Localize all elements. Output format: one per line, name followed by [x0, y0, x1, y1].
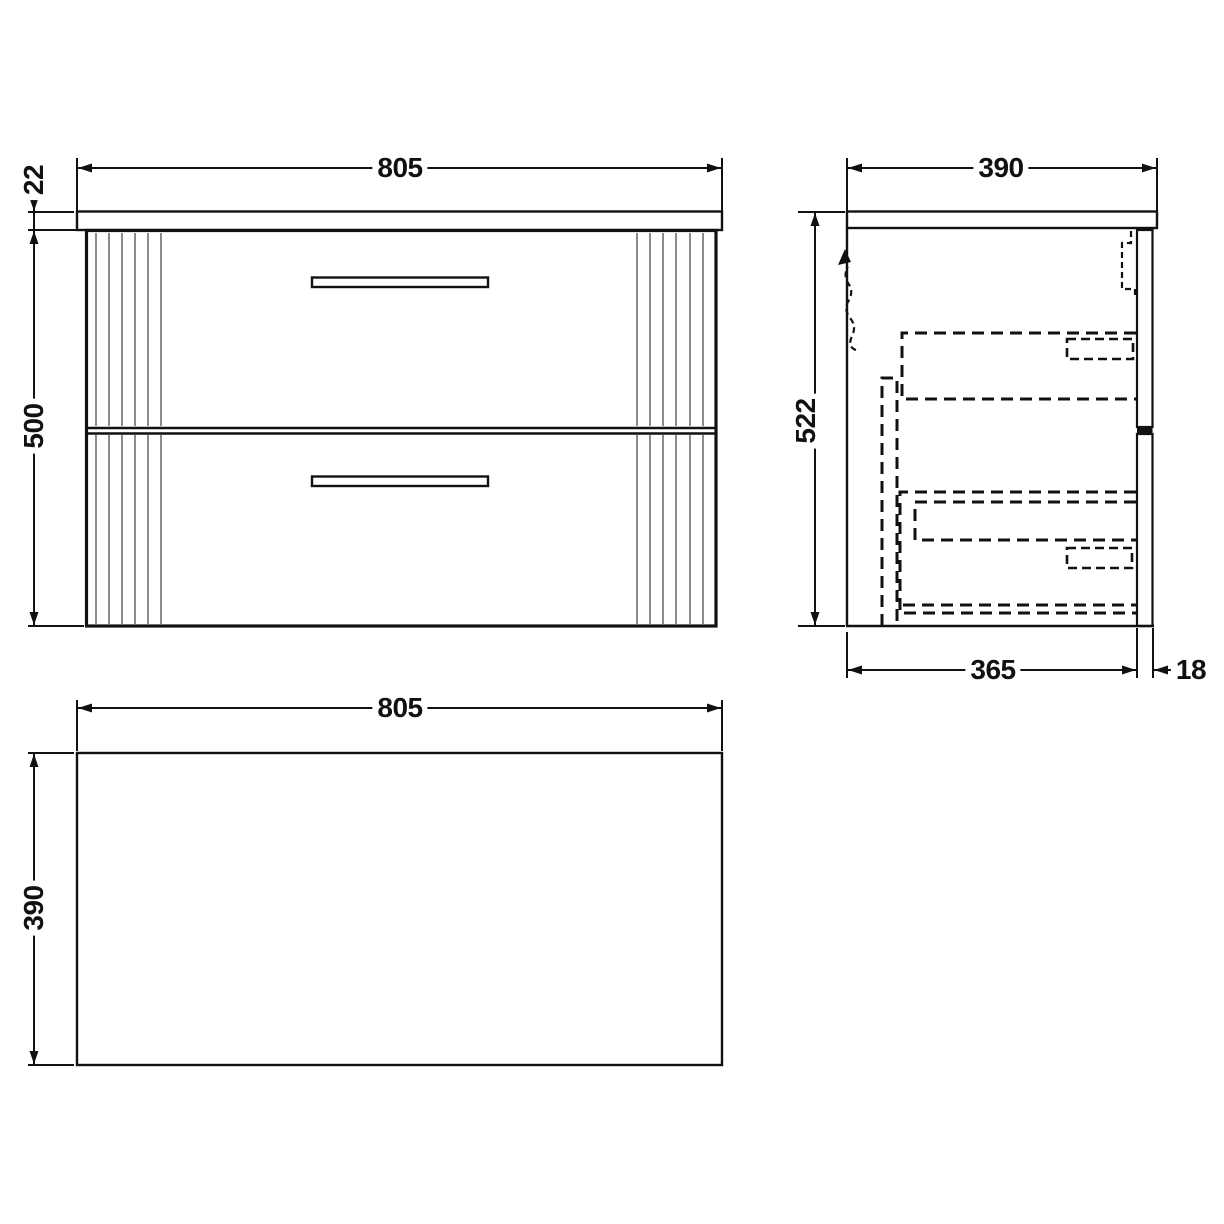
front-worktop-thickness-dim-label: 22: [19, 160, 49, 200]
side-height-dim-label: 522: [791, 393, 821, 448]
side-worktop: [847, 212, 1157, 229]
lower-drawer-runner: [1067, 548, 1132, 568]
back-panel-hidden: [882, 378, 897, 626]
upper-drawer-handle: [312, 278, 488, 288]
side-dimensions: [798, 158, 1172, 678]
technical-drawing: 805 22 500 390 522 365 18 805 390: [0, 0, 1224, 1224]
side-front-panel-upper: [1137, 230, 1153, 427]
plan-dimensions: [28, 700, 722, 1065]
front-width-dim-label: 805: [372, 153, 427, 183]
side-panel-gap: [1137, 426, 1153, 434]
side-front-panel-lower: [1137, 434, 1153, 626]
plan-view: [77, 753, 722, 1065]
plan-outline: [77, 753, 722, 1065]
wall-bracket-hidden: [1122, 231, 1135, 298]
mounting-arrow-head: [838, 249, 851, 265]
side-view: [838, 212, 1157, 627]
front-dimensions: [28, 158, 722, 626]
side-carcass: [846, 228, 1154, 626]
lower-drawer-handle: [312, 477, 488, 487]
upper-drawer-hidden: [902, 333, 1136, 399]
lower-drawer-hidden: [900, 492, 1136, 613]
side-front-panel-dim-label: 18: [1171, 655, 1211, 685]
front-height-dim-label: 500: [19, 398, 49, 453]
side-depth-dim-label: 390: [973, 153, 1028, 183]
drawing-linework: [0, 0, 1224, 1224]
plan-width-dim-label: 805: [372, 693, 427, 723]
side-body-depth-dim-label: 365: [965, 655, 1020, 685]
front-drawer-divider: [86, 428, 716, 434]
front-view: [77, 212, 722, 627]
upper-drawer-runner: [1067, 339, 1133, 359]
front-worktop: [77, 212, 722, 231]
plan-depth-dim-label: 390: [19, 880, 49, 935]
